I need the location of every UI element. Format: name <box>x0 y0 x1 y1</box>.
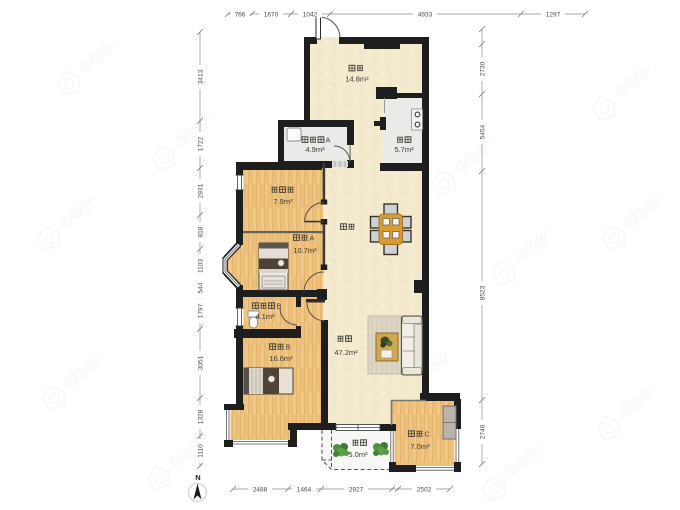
svg-text:3413: 3413 <box>198 69 205 84</box>
svg-text:4933: 4933 <box>418 12 433 19</box>
svg-text:8523: 8523 <box>480 285 487 300</box>
svg-text:1297: 1297 <box>546 12 561 19</box>
svg-text:1464: 1464 <box>297 487 312 494</box>
svg-text:1110: 1110 <box>198 444 205 458</box>
svg-text:10.7m²: 10.7m² <box>293 246 317 255</box>
svg-text:1797: 1797 <box>198 303 205 318</box>
svg-text:2927: 2927 <box>349 487 364 494</box>
svg-text:766: 766 <box>235 12 246 19</box>
svg-text:1328: 1328 <box>198 409 205 424</box>
svg-text:7.9m²: 7.9m² <box>273 197 293 206</box>
svg-text:7.0m²: 7.0m² <box>410 442 430 451</box>
svg-text:N: N <box>195 473 200 482</box>
svg-text:B: B <box>286 345 291 352</box>
svg-text:5454: 5454 <box>480 124 487 139</box>
svg-text:4.9m²: 4.9m² <box>305 145 325 154</box>
svg-text:1722: 1722 <box>198 136 205 151</box>
svg-text:5.7m²: 5.7m² <box>394 145 414 154</box>
svg-text:1670: 1670 <box>264 12 279 19</box>
svg-text:1042: 1042 <box>303 12 318 19</box>
svg-text:A: A <box>326 138 331 145</box>
svg-text:14.8m²: 14.8m² <box>345 75 369 84</box>
svg-text:5.0m²: 5.0m² <box>348 450 368 459</box>
svg-text:2730: 2730 <box>480 61 487 76</box>
svg-text:47.2m²: 47.2m² <box>334 348 358 357</box>
svg-text:A: A <box>310 236 315 243</box>
svg-text:B: B <box>277 304 282 311</box>
svg-text:2488: 2488 <box>253 487 268 494</box>
svg-text:544: 544 <box>198 282 205 293</box>
svg-text:2931: 2931 <box>198 183 205 198</box>
svg-text:3051: 3051 <box>198 355 205 370</box>
svg-text:818: 818 <box>198 226 205 237</box>
svg-text:C: C <box>424 432 429 439</box>
svg-text:2502: 2502 <box>417 487 432 494</box>
svg-text:16.6m²: 16.6m² <box>269 354 293 363</box>
svg-text:2746: 2746 <box>480 424 487 439</box>
svg-text:1103: 1103 <box>198 259 205 273</box>
svg-text:4.1m²: 4.1m² <box>255 312 275 321</box>
